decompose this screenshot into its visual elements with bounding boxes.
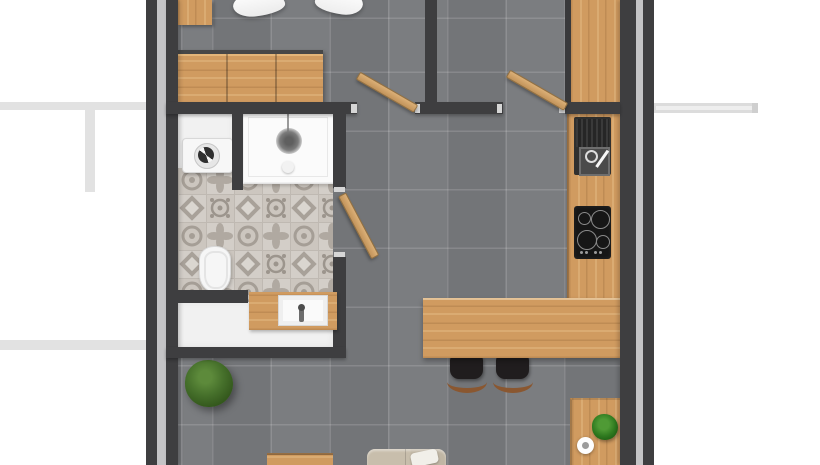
burner-small-1 — [578, 212, 591, 225]
cooktop — [574, 206, 611, 259]
neighbor-wall-right-cap — [752, 103, 758, 113]
neighbor-wall-right-highlight — [656, 106, 752, 110]
dresser — [178, 50, 323, 103]
neighbor-wall-left-vertical — [85, 110, 95, 192]
kitchen-sink — [574, 117, 611, 175]
jamb-hall-door-left — [497, 104, 502, 113]
bathroom-wall-right-upper — [333, 111, 346, 188]
sofa-cushion-seam — [405, 449, 406, 465]
floor-plan — [0, 0, 820, 465]
bedroom-hall-wall — [425, 0, 437, 114]
kitchen-sink-drainboard — [576, 119, 609, 147]
nightstand — [178, 0, 212, 25]
large-plant — [185, 360, 233, 407]
shower-drain — [282, 161, 294, 173]
wall-cavity-left — [157, 0, 166, 465]
toilet-seat — [204, 251, 228, 289]
burner-small-2 — [596, 235, 610, 249]
cup-center — [582, 442, 589, 449]
dresser-front — [178, 54, 323, 105]
cooktop-knob-1 — [580, 251, 583, 254]
vanity-faucet-head — [298, 304, 305, 311]
cooktop-knob-2 — [585, 251, 588, 254]
burner-large-2 — [577, 230, 597, 250]
breakfast-bar — [423, 298, 620, 358]
bathroom-partition-wall — [232, 111, 243, 190]
washing-machine-drum — [198, 147, 214, 163]
low-table — [267, 453, 333, 465]
neighbor-wall-left-top — [0, 102, 147, 110]
wardrobe-cabinet — [571, 0, 620, 102]
partition-wall-top-left — [166, 102, 357, 114]
cooktop-knob-3 — [594, 251, 597, 254]
bar-stool-1-base — [447, 371, 487, 393]
burner-large-1 — [591, 210, 610, 229]
partition-wall-top-right — [565, 102, 620, 114]
dresser-divider-2 — [275, 54, 277, 103]
exterior-wall-right-outer — [643, 0, 654, 465]
dresser-divider-1 — [226, 54, 228, 103]
shower-head — [276, 128, 302, 154]
small-plant — [592, 414, 618, 440]
jamb-bathroom-door-top — [334, 187, 345, 192]
cooktop-knob-4 — [599, 251, 602, 254]
jamb-bathroom-door-bottom — [334, 252, 345, 257]
wall-cavity-right — [636, 0, 643, 465]
exterior-wall-left-outer — [146, 0, 157, 465]
neighbor-wall-left-bottom — [0, 340, 147, 350]
jamb-bedroom-door-left — [351, 104, 357, 113]
bathroom-wall-bottom — [166, 347, 346, 358]
bar-stool-2-base — [493, 371, 533, 393]
kitchen-faucet-control — [585, 150, 598, 163]
exterior-wall-right-inner — [620, 0, 636, 465]
exterior-wall-left-inner — [166, 0, 178, 465]
bathroom-inner-wall — [178, 290, 248, 303]
